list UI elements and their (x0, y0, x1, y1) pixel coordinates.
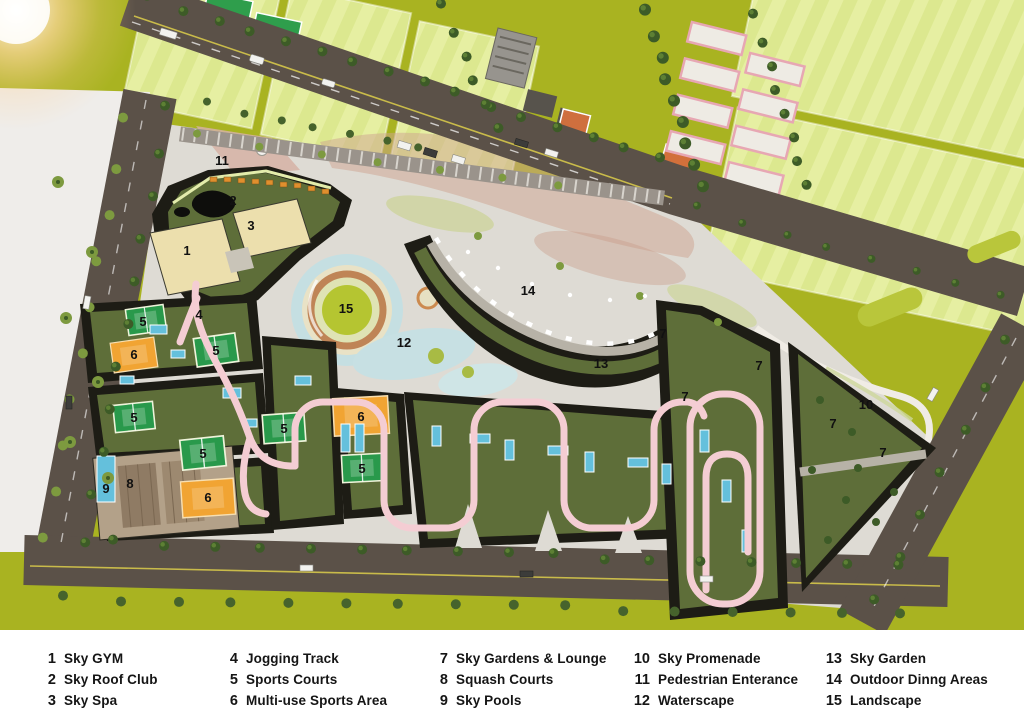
legend-item-number: 10 (628, 651, 650, 667)
rooftop-pool (432, 426, 441, 446)
legend-item-number: 9 (426, 693, 448, 709)
legend-item-label: Waterscape (658, 693, 734, 708)
legend-item-label: Sky Pools (456, 693, 521, 708)
map-marker-7: 7 (681, 389, 688, 404)
map-marker-1: 1 (183, 243, 190, 258)
legend-column: 13Sky Garden14Outdoor Dinng Areas15Lands… (820, 651, 1010, 716)
map-marker-4: 4 (195, 307, 203, 322)
legend-item-label: Squash Courts (456, 672, 553, 687)
map-marker-5: 5 (199, 446, 206, 461)
legend-item-number: 15 (820, 693, 842, 709)
legend-item-number: 12 (628, 693, 650, 709)
map-marker-11: 11 (215, 153, 229, 168)
legend-item-number: 4 (216, 651, 238, 667)
legend-item: 12Waterscape (628, 693, 820, 714)
rooftop-pool (722, 480, 731, 502)
legend-item-label: Sports Courts (246, 672, 337, 687)
rooftop-pool (505, 440, 514, 460)
map-marker-7: 7 (755, 358, 762, 373)
legend-item-label: Multi-use Sports Area (246, 693, 387, 708)
legend-item-label: Jogging Track (246, 651, 339, 666)
map-marker-14: 14 (521, 283, 536, 298)
rooftop-pool (355, 424, 364, 452)
legend-item-label: Sky Promenade (658, 651, 761, 666)
map-marker-5: 5 (212, 343, 219, 358)
legend-item-label: Sky GYM (64, 651, 123, 666)
map-marker-15: 15 (339, 301, 353, 316)
rooftop-pool (341, 424, 350, 452)
legend-item-label: Pedestrian Enterance (658, 672, 798, 687)
legend-item-number: 7 (426, 651, 448, 667)
legend: 1Sky GYM2Sky Roof Club3Sky Spa4Jogging T… (0, 640, 1024, 716)
legend-item-number: 1 (34, 651, 56, 667)
map-marker-8: 8 (126, 476, 133, 491)
map-marker-3: 3 (247, 218, 254, 233)
map-marker-5: 5 (280, 421, 287, 436)
legend-item: 14Outdoor Dinng Areas (820, 672, 1010, 693)
legend-item-label: Sky Gardens & Lounge (456, 651, 607, 666)
map-marker-5: 5 (130, 410, 137, 425)
map-marker-10: 10 (859, 397, 873, 412)
legend-item-number: 6 (216, 693, 238, 709)
rooftop-pool (700, 430, 709, 452)
legend-column: 4Jogging Track5Sports Courts6Multi-use S… (216, 651, 426, 716)
map-marker-7: 7 (659, 326, 666, 341)
legend-item: 10Sky Promenade (628, 651, 820, 672)
legend-item: 1Sky GYM (34, 651, 216, 672)
rooftop-pool (295, 376, 311, 385)
legend-item-number: 2 (34, 672, 56, 688)
legend-column: 10Sky Promenade11Pedestrian Enterance12W… (628, 651, 820, 716)
legend-item: 2Sky Roof Club (34, 672, 216, 693)
legend-item-number: 3 (34, 693, 56, 709)
map-marker-6: 6 (130, 347, 137, 362)
map-marker-2: 2 (229, 193, 236, 208)
map-marker-12: 12 (397, 335, 411, 350)
rooftop-pool (585, 452, 594, 472)
map-marker-7: 7 (829, 416, 836, 431)
legend-item-number: 13 (820, 651, 842, 667)
rooftop-pool (628, 458, 648, 467)
legend-item: 13Sky Garden (820, 651, 1010, 672)
legend-item: 11Pedestrian Enterance (628, 672, 820, 693)
legend-item: 15Landscape (820, 693, 1010, 714)
rooftop-pool (120, 376, 134, 384)
legend-item: 5Sports Courts (216, 672, 426, 693)
legend-column: 1Sky GYM2Sky Roof Club3Sky Spa (34, 651, 216, 716)
legend-item-label: Sky Spa (64, 693, 117, 708)
legend-item: 4Jogging Track (216, 651, 426, 672)
map-marker-7: 7 (879, 445, 886, 460)
map-marker-13: 13 (594, 356, 608, 371)
legend-item: 9Sky Pools (426, 693, 628, 714)
masterplan-page: 12345555556667777789101112131415 1Sky GY… (0, 0, 1024, 716)
legend-item-number: 5 (216, 672, 238, 688)
map-marker-9: 9 (102, 481, 109, 496)
legend-item: 8Squash Courts (426, 672, 628, 693)
map-marker-5: 5 (358, 461, 365, 476)
legend-item-label: Outdoor Dinng Areas (850, 672, 988, 687)
map-marker-5: 5 (139, 314, 146, 329)
legend-item: 7Sky Gardens & Lounge (426, 651, 628, 672)
legend-item-number: 11 (628, 672, 650, 688)
legend-item-label: Landscape (850, 693, 921, 708)
legend-item-label: Sky Garden (850, 651, 926, 666)
map-marker-6: 6 (204, 490, 211, 505)
legend-item-label: Sky Roof Club (64, 672, 158, 687)
legend-item-number: 8 (426, 672, 448, 688)
rooftop-pool (171, 350, 185, 358)
site-plan-rendering: 12345555556667777789101112131415 (0, 0, 1024, 640)
legend-item: 6Multi-use Sports Area (216, 693, 426, 714)
rooftop-pool (662, 464, 671, 484)
map-marker-6: 6 (357, 409, 364, 424)
rooftop-pool (150, 325, 167, 334)
legend-column: 7Sky Gardens & Lounge8Squash Courts9Sky … (426, 651, 628, 716)
legend-item-number: 14 (820, 672, 842, 688)
legend-item: 3Sky Spa (34, 693, 216, 714)
